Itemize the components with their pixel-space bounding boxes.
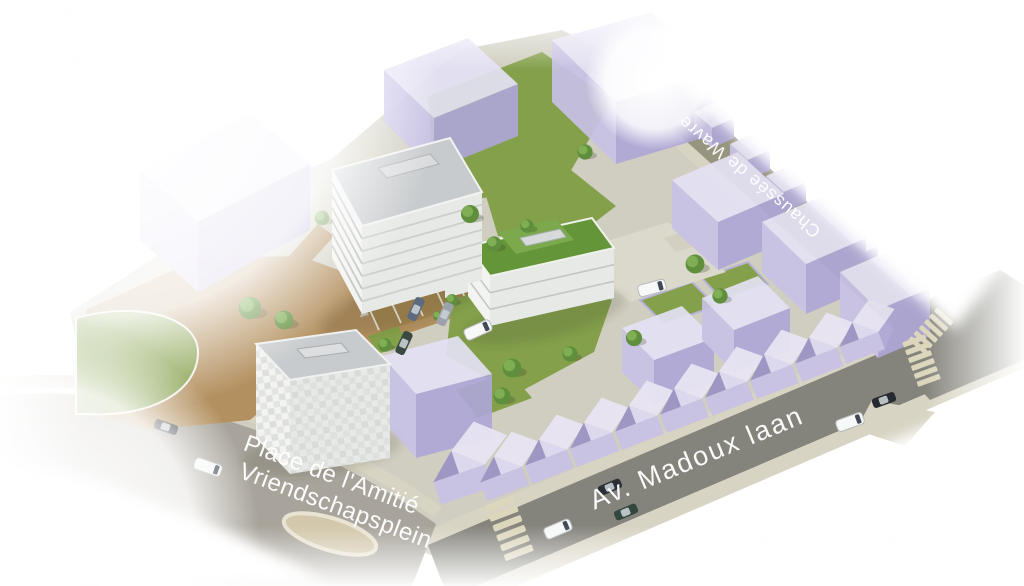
fade-bottom-edge: [0, 525, 1024, 586]
fade-top-edge: [0, 0, 1024, 70]
site-plan-canvas: Chaussée de Wavre Av. Madoux laan Place …: [0, 0, 1024, 586]
fade-left-edge: [0, 0, 85, 586]
fade-right-edge: [925, 0, 1024, 586]
site-plan-rendering: Chaussée de Wavre Av. Madoux laan Place …: [0, 0, 1024, 586]
